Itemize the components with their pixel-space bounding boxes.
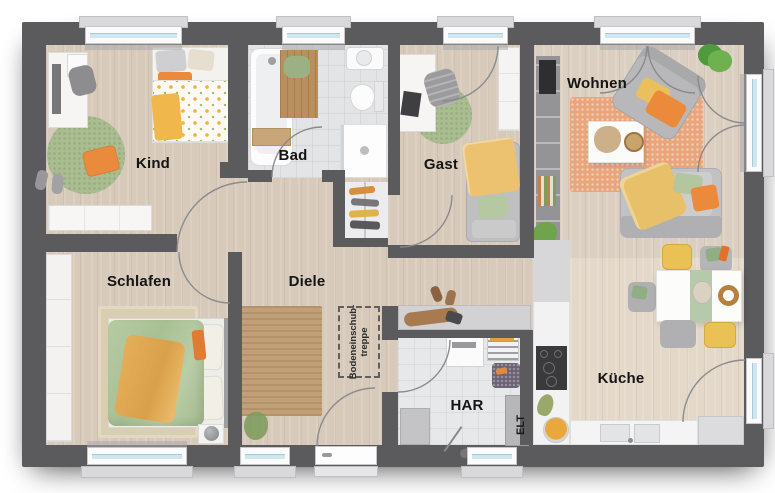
window-bad xyxy=(282,26,345,44)
gast-seat-cushion xyxy=(472,220,516,238)
schlafen-wardrobe xyxy=(46,254,72,442)
attic-hatch: Bodeneinschub- treppe xyxy=(338,306,380,378)
har-rack-towel xyxy=(490,338,514,341)
window-sill xyxy=(87,441,187,447)
wall xyxy=(520,45,534,258)
window-sill xyxy=(600,44,695,50)
room-label-bad: Bad xyxy=(253,147,333,164)
window-shutter-box xyxy=(81,466,193,478)
wohnen-sofa-pillow-orange xyxy=(690,184,720,212)
room-label-elt: ELT xyxy=(510,407,532,443)
window-shutter-box xyxy=(763,353,774,429)
schlafen-vase xyxy=(204,426,219,441)
entrance-threshold xyxy=(314,466,378,477)
window-glass xyxy=(92,454,182,459)
entrance-door xyxy=(315,446,377,465)
bad-faucet xyxy=(268,57,276,65)
kitchen-corner-cabinet xyxy=(698,416,744,445)
bad-shower-drain xyxy=(360,146,369,155)
window-glass xyxy=(448,33,503,38)
kitchen-fruit-bowl xyxy=(543,417,569,443)
kitchen-sink-basin xyxy=(600,424,630,442)
window-glass xyxy=(287,33,340,38)
kitchen-burner xyxy=(554,350,562,358)
room-label-diele: Diele xyxy=(267,273,347,290)
dining-napkin-green xyxy=(631,285,648,300)
window-glass xyxy=(605,33,690,38)
window-kind xyxy=(85,26,182,44)
dining-chair-yellow xyxy=(662,244,692,270)
kind-slipper xyxy=(51,174,63,195)
wall xyxy=(228,252,242,445)
wall xyxy=(398,330,533,338)
wohnen-tray xyxy=(624,132,644,152)
dining-bouquet xyxy=(692,281,712,304)
window-har xyxy=(467,447,517,465)
room-label-schlafen: Schlafen xyxy=(79,273,199,290)
bad-towel-green xyxy=(284,56,310,78)
room-label-kind: Kind xyxy=(113,155,193,172)
floor-plan: Bodeneinschub- treppe xyxy=(0,0,775,493)
window-glass xyxy=(90,33,177,38)
wall xyxy=(333,238,388,247)
gast-wardrobe xyxy=(498,47,520,131)
dining-wreath xyxy=(718,285,739,306)
kitchen-tall-cabinet xyxy=(533,240,570,302)
window-shutter-box xyxy=(763,69,774,177)
window-diele xyxy=(240,447,290,465)
kind-pillow-beige xyxy=(187,49,215,72)
wall xyxy=(382,392,398,445)
kind-sideboard xyxy=(48,205,152,231)
shoe-pair xyxy=(350,220,380,230)
terrace-door-kueche xyxy=(746,358,762,424)
wall xyxy=(322,170,345,182)
window-glass xyxy=(752,363,757,419)
window-gast xyxy=(443,26,508,44)
window-sill xyxy=(740,74,746,172)
bad-toilet-tank xyxy=(374,81,384,112)
wall xyxy=(388,45,400,195)
dining-chair-yellow xyxy=(704,322,736,348)
kitchen-burner xyxy=(546,376,557,387)
room-label-gast: Gast xyxy=(401,156,481,173)
window-sill xyxy=(282,44,345,50)
wall xyxy=(382,306,398,340)
window-sill xyxy=(85,44,182,50)
kind-monitor xyxy=(52,64,61,114)
gast-laptop xyxy=(400,91,421,117)
window-glass xyxy=(245,454,285,459)
gast-pillow-green xyxy=(477,195,508,219)
window-glass xyxy=(472,454,512,459)
kitchen-sink-basin xyxy=(634,424,660,443)
kind-pillow-gray xyxy=(155,49,187,74)
window-shutter-box xyxy=(461,466,523,478)
window-shutter-box xyxy=(234,466,296,478)
window-glass xyxy=(752,79,757,167)
window-sill xyxy=(443,44,508,50)
wohnen-books xyxy=(538,176,556,206)
diele-jute-rug xyxy=(240,306,322,416)
window-wohnen-top xyxy=(600,26,695,44)
kind-blanket-yellow xyxy=(151,93,183,141)
dining-chair-gray xyxy=(660,320,696,348)
kitchen-faucet xyxy=(628,438,633,443)
wall xyxy=(220,162,228,178)
wall xyxy=(248,170,272,182)
room-label-wohnen: Wohnen xyxy=(547,75,647,92)
room-label-kueche: Küche xyxy=(571,370,671,387)
wall xyxy=(388,245,534,258)
kitchen-burner xyxy=(540,350,548,358)
attic-hatch-label: Bodeneinschub- treppe xyxy=(348,305,370,379)
bad-sink-basin xyxy=(356,50,372,66)
har-washing-machine xyxy=(446,336,484,367)
window-door-wohnen xyxy=(746,74,762,172)
kitchen-burner xyxy=(543,362,555,374)
window-schlafen xyxy=(87,447,187,465)
door-handle xyxy=(322,453,332,457)
wall xyxy=(46,234,177,252)
room-label-har: HAR xyxy=(427,397,507,414)
schlafen-blanket-orange xyxy=(114,334,186,424)
har-cabinet xyxy=(400,408,430,445)
bad-tub-caddy xyxy=(252,128,291,146)
har-washing-machine-panel xyxy=(452,342,476,348)
wall xyxy=(228,45,248,178)
